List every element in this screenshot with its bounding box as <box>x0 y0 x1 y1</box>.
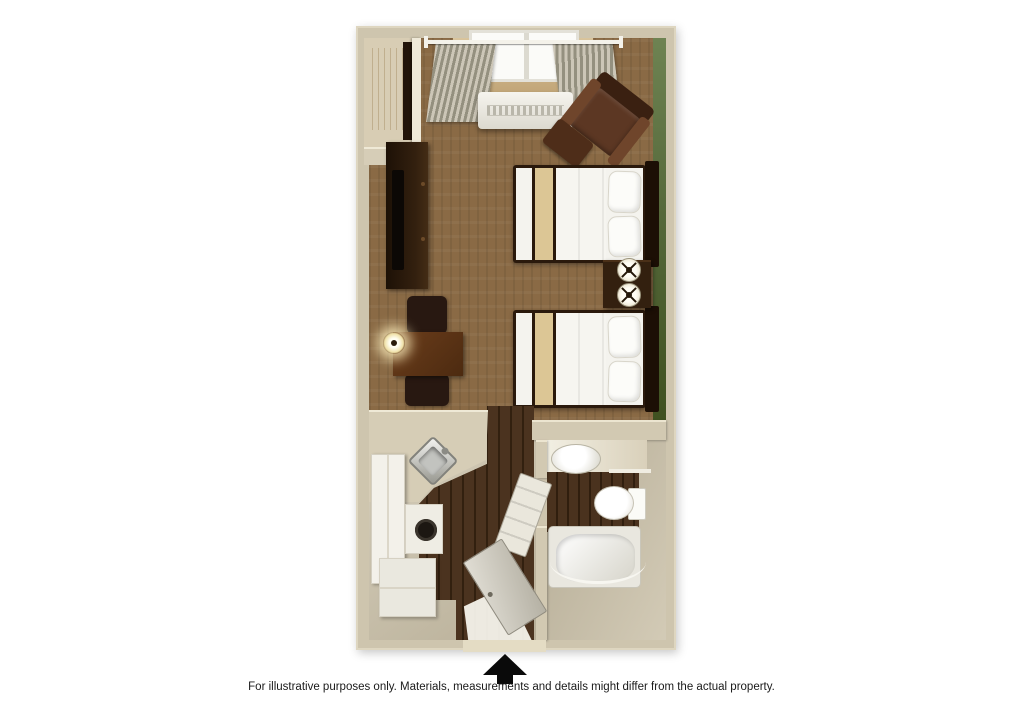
pillow <box>607 170 641 213</box>
closet <box>364 38 416 150</box>
table-lamp <box>617 283 641 307</box>
desk-chair <box>407 296 447 334</box>
drawer-handle <box>421 182 425 186</box>
bathroom-wall <box>536 440 547 478</box>
dresser <box>386 142 428 289</box>
closet-shelving <box>372 48 403 130</box>
ac-vents <box>487 105 564 116</box>
mattress <box>516 313 643 405</box>
bed-runner <box>532 168 556 260</box>
table-lamp <box>617 258 641 282</box>
duvet <box>556 313 606 405</box>
desk-lamp <box>383 332 405 354</box>
entry-threshold <box>463 640 546 652</box>
floor-plan <box>356 26 676 650</box>
mattress <box>516 168 643 260</box>
stove-burner <box>415 519 437 541</box>
toilet <box>594 486 634 520</box>
headboard <box>645 306 659 412</box>
disclaimer-caption: For illustrative purposes only. Material… <box>0 681 1023 693</box>
desk-chair <box>405 374 449 406</box>
headboard <box>645 161 659 267</box>
nightstand <box>603 260 651 308</box>
bathroom-wall <box>536 526 547 640</box>
bathroom-wall <box>532 420 666 440</box>
bed-1 <box>513 165 659 263</box>
closet-wall-stub <box>412 38 421 150</box>
door-knob <box>487 591 494 598</box>
pillow <box>607 215 641 257</box>
base-cabinet <box>379 558 436 617</box>
lamp-finial <box>626 267 632 273</box>
towel-ledge <box>609 469 651 473</box>
floor-plan-page: For illustrative purposes only. Material… <box>0 0 1023 716</box>
stove <box>405 504 443 554</box>
drawer-handle <box>421 237 425 241</box>
duvet <box>556 168 606 260</box>
lamp-finial <box>626 292 632 298</box>
entrance-arrow-icon <box>483 654 527 675</box>
television <box>392 170 404 270</box>
curtain-rod-finial <box>424 36 428 48</box>
pillow <box>607 315 641 358</box>
bed-runner <box>532 313 556 405</box>
bathroom-sink <box>551 444 601 474</box>
bed-2 <box>513 310 659 408</box>
curtain-rod-finial <box>619 36 623 48</box>
pillow <box>607 360 641 402</box>
curtain-rod <box>426 40 622 44</box>
shower-rod <box>550 540 646 584</box>
